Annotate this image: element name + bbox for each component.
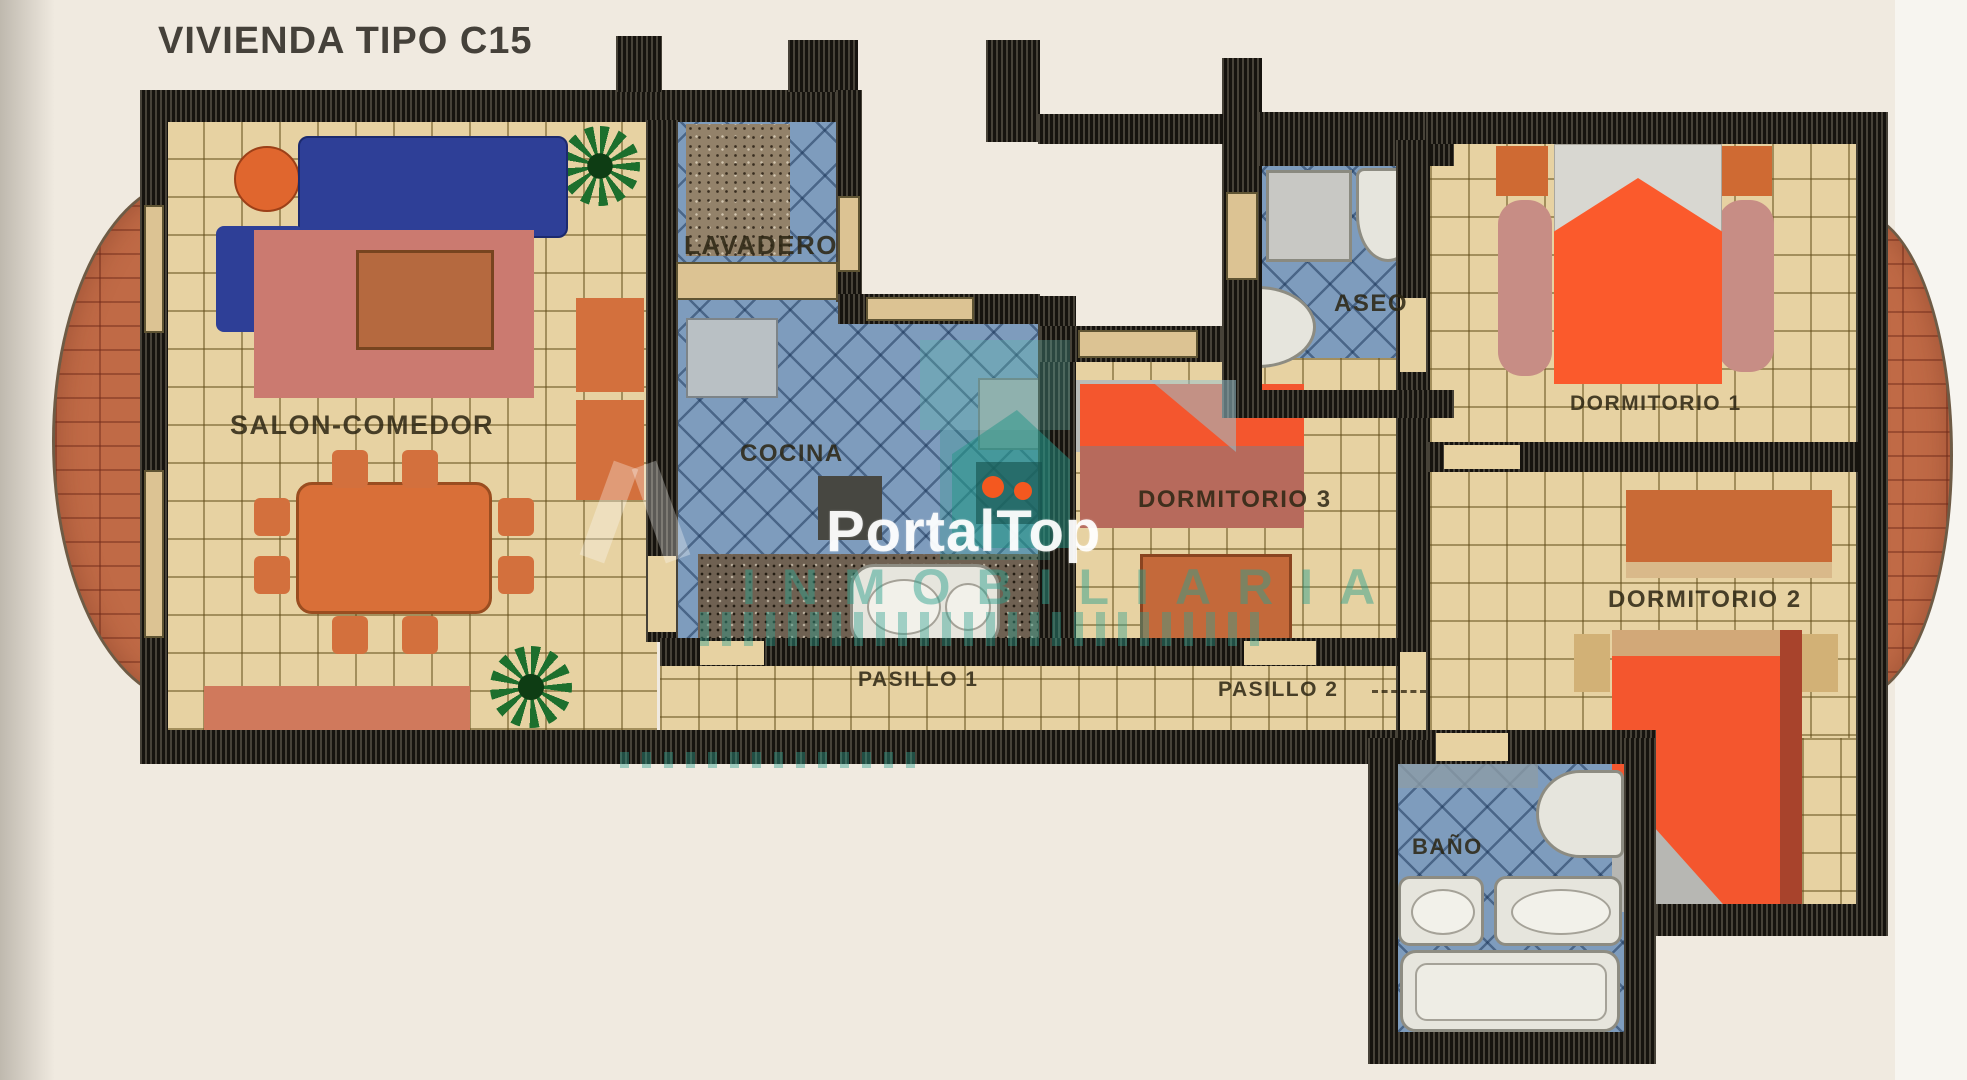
- chair: [332, 450, 368, 488]
- room-label-bano: BAÑO: [1412, 834, 1483, 860]
- room-label-salon-comedor: SALON-COMEDOR: [230, 410, 494, 441]
- wall: [140, 90, 862, 122]
- window: [144, 205, 164, 333]
- chair: [402, 616, 438, 654]
- watermark-shape: [920, 340, 1070, 430]
- wall: [1656, 904, 1888, 936]
- room-label-pasillo2: PASILLO 2: [1218, 678, 1338, 702]
- wall: [616, 36, 662, 92]
- wall: [1426, 112, 1888, 144]
- window: [866, 297, 974, 321]
- floor-plan: VIVIENDA TIPO C15: [0, 0, 1967, 1080]
- coffee-table: [356, 250, 494, 350]
- chair: [254, 498, 290, 536]
- wall: [986, 40, 1040, 142]
- plant: [560, 126, 640, 206]
- wall: [1368, 738, 1398, 1064]
- room-label-dormitorio2: DORMITORIO 2: [1608, 586, 1802, 614]
- bed-side-rail: [1780, 630, 1802, 912]
- wall: [1222, 390, 1454, 418]
- plan-title: VIVIENDA TIPO C15: [158, 20, 533, 63]
- plant: [490, 646, 572, 728]
- dining-table: [296, 482, 492, 614]
- room-label-lavadero: LAVADERO: [684, 230, 838, 261]
- pasillo2-arrow: [1372, 690, 1426, 693]
- nightstand: [1496, 146, 1548, 196]
- bed: [1554, 144, 1722, 384]
- window: [144, 470, 164, 638]
- washbasin: [1398, 876, 1484, 946]
- wall: [1624, 738, 1656, 1064]
- window: [838, 196, 860, 272]
- sink-basin: [1411, 889, 1475, 935]
- nightstand: [1800, 634, 1838, 692]
- door-opening: [1436, 733, 1508, 761]
- watermark-scribble: [620, 752, 920, 768]
- room-label-dormitorio3: DORMITORIO 3: [1138, 486, 1332, 514]
- room-label-pasillo1: PASILLO 1: [858, 668, 978, 692]
- wall: [1856, 140, 1888, 936]
- washbasin: [1494, 876, 1622, 946]
- bathtub-basin: [1415, 963, 1607, 1021]
- shower-tray: [1266, 170, 1352, 262]
- nightstand: [1720, 146, 1772, 196]
- window: [1226, 192, 1258, 280]
- window-sill: [676, 262, 838, 300]
- watermark-tagline: INMOBILIARIA: [742, 558, 1401, 616]
- chair: [332, 616, 368, 654]
- toilet: [1536, 770, 1624, 858]
- room-label-dormitorio1: DORMITORIO 1: [1570, 392, 1742, 416]
- bedside-rug: [1498, 200, 1552, 376]
- window: [1078, 330, 1198, 358]
- sofa: [298, 136, 568, 238]
- room-label-cocina: COCINA: [740, 440, 844, 468]
- nightstand: [1574, 634, 1610, 692]
- door-opening: [648, 556, 676, 632]
- wall: [1368, 1032, 1656, 1064]
- wall: [1038, 114, 1224, 144]
- bathroom-shelf: [1398, 762, 1538, 788]
- watermark-dot: [982, 476, 1004, 498]
- chair: [498, 498, 534, 536]
- bed-headboard: [1612, 630, 1802, 656]
- bathtub: [1400, 950, 1620, 1032]
- round-side-table: [234, 146, 300, 212]
- photo-edge-shadow: [0, 0, 55, 1080]
- room-label-aseo: ASEO: [1334, 290, 1408, 318]
- watermark-brand: PortalTop: [826, 498, 1101, 565]
- door-opening: [1444, 445, 1520, 469]
- shelf-unit: [576, 298, 644, 392]
- chair: [254, 556, 290, 594]
- chair: [498, 556, 534, 594]
- wardrobe: [1626, 490, 1832, 578]
- fridge: [686, 318, 778, 398]
- wall: [1396, 140, 1430, 740]
- bedside-rug: [1718, 200, 1774, 372]
- wall: [788, 40, 858, 92]
- watermark-scribble: [700, 612, 1260, 646]
- sink-basin: [1511, 889, 1611, 935]
- chair: [402, 450, 438, 488]
